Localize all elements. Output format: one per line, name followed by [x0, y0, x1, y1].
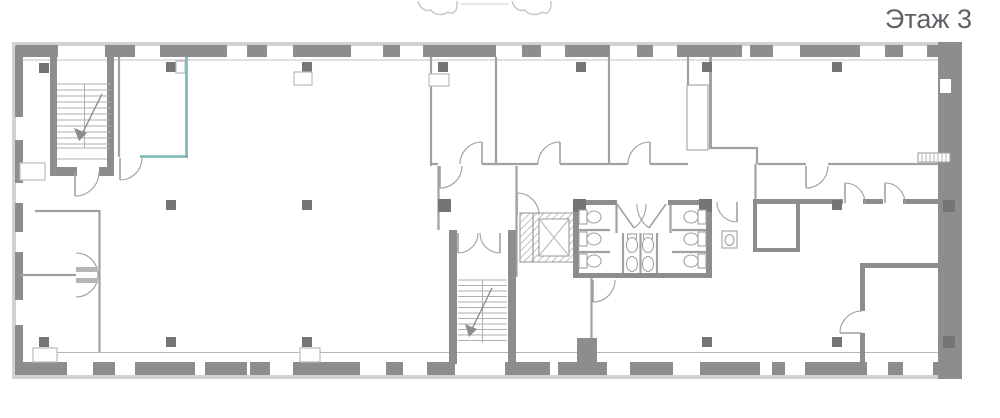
sink-icon	[722, 231, 737, 248]
door-arc	[840, 311, 862, 333]
radiator	[918, 153, 950, 162]
wc-entry-doors	[617, 204, 666, 228]
toilet-icon	[579, 210, 601, 268]
door-arc	[845, 183, 865, 203]
right-rooms-walls	[577, 199, 950, 364]
riser-shaft	[687, 85, 708, 150]
elevator-side-shaft	[520, 213, 533, 262]
floor-plan	[0, 0, 1000, 418]
double-swing-door	[76, 253, 98, 297]
door-arc	[717, 202, 737, 222]
door-arc	[538, 142, 560, 164]
sketch-fragment	[418, 1, 551, 14]
elevator-shaft	[520, 213, 575, 262]
right-wall-notch	[940, 79, 951, 93]
door-arc	[75, 172, 99, 196]
stair-treads	[458, 280, 507, 343]
door-swings	[75, 142, 905, 333]
wc-block	[573, 199, 737, 278]
door-arc	[628, 142, 650, 164]
door-arc	[120, 158, 142, 180]
door-arc	[440, 166, 462, 188]
floor-plan-page: Этаж 3	[0, 0, 1000, 418]
door-arc	[806, 166, 828, 188]
staircase-northwest	[50, 57, 114, 176]
door-arc	[517, 193, 539, 215]
door-arc	[460, 142, 482, 164]
stair-treads	[57, 84, 111, 159]
door-arc	[480, 233, 500, 253]
outer-wall-bottom	[12, 353, 958, 380]
door-arc	[593, 280, 615, 302]
staircase-central	[449, 230, 516, 364]
elevator-x	[539, 219, 569, 256]
door-arc	[458, 233, 478, 253]
stair-direction-arrow	[74, 94, 102, 141]
door-arc	[885, 183, 905, 203]
niches-and-boxes	[20, 61, 950, 362]
outer-wall-top	[12, 42, 958, 60]
outer-wall-left	[12, 42, 23, 379]
toilet-icon	[684, 210, 706, 268]
